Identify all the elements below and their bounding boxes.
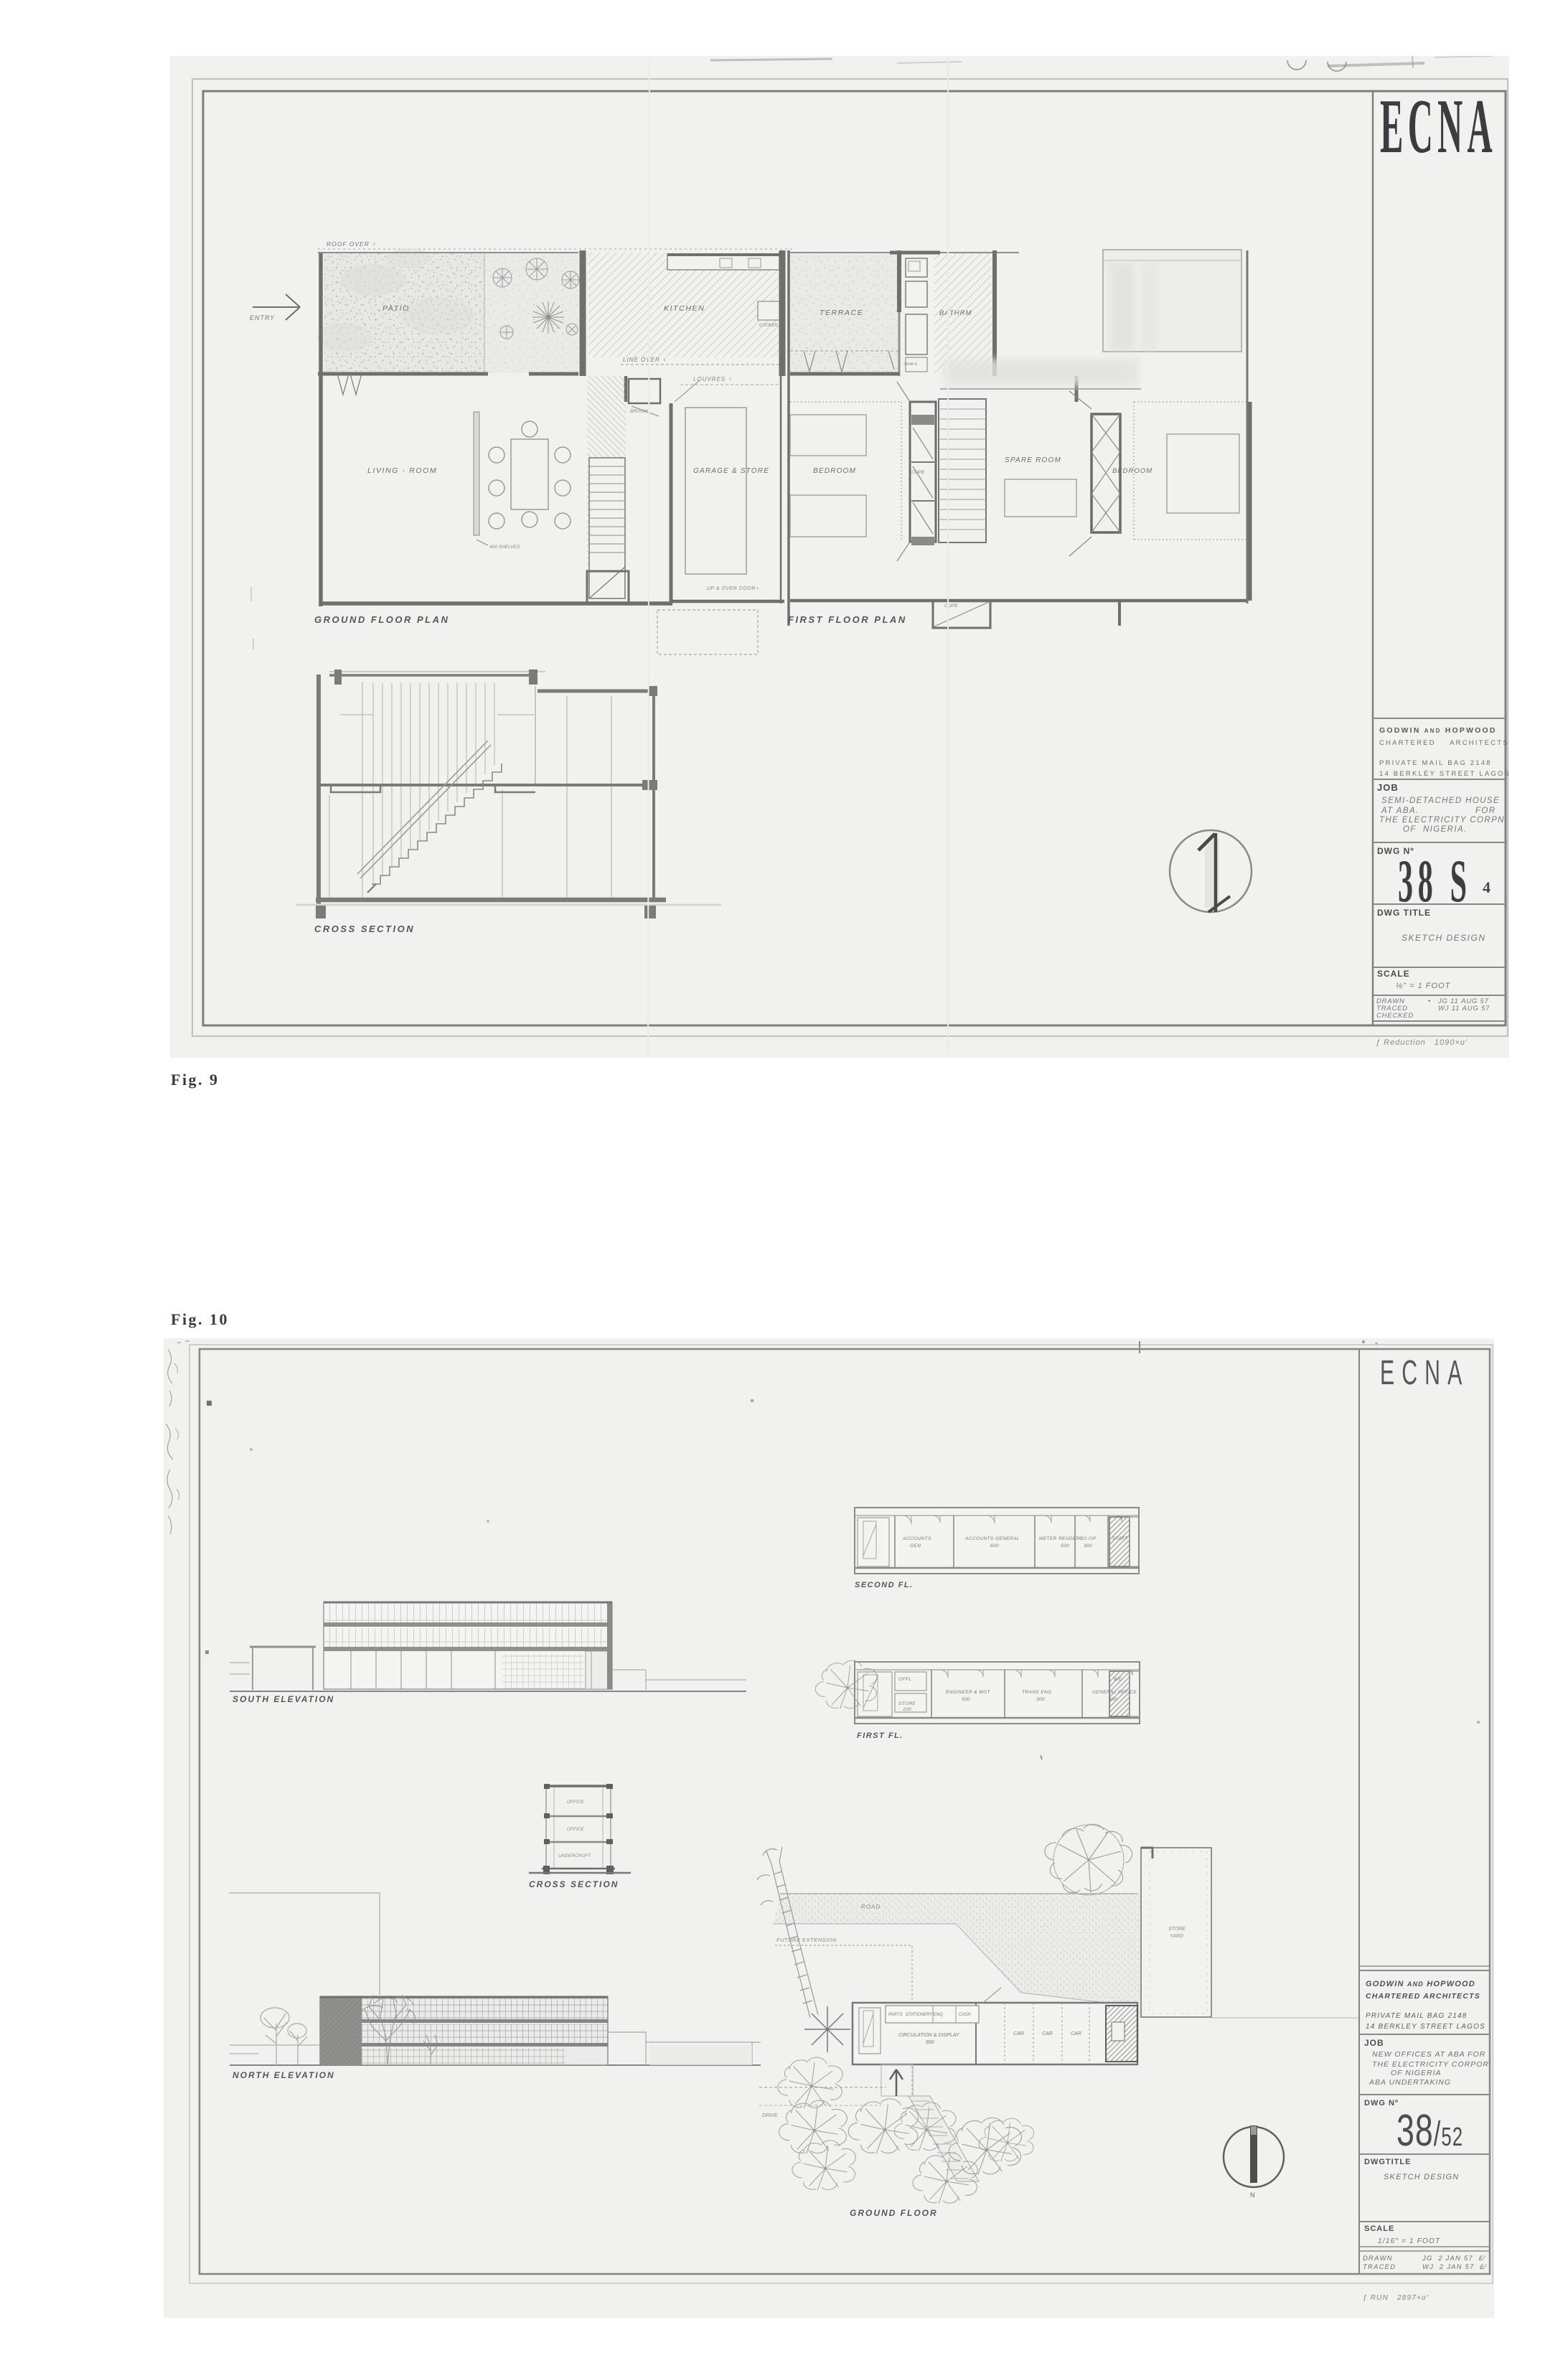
svg-text:COOKER: COOKER [759,324,779,328]
svg-text:ƒ Reduction 1090×ʊ′: ƒ Reduction 1090×ʊ′ [1376,1038,1468,1047]
svg-text:GENERAL OFFICE: GENERAL OFFICE [1092,1690,1137,1695]
svg-text:100: 100 [903,1707,911,1712]
svg-text:⅛" = 1 FOOT: ⅛" = 1 FOOT [1396,982,1451,990]
svg-text:•: • [1428,997,1431,1005]
svg-text:LINE OVER ♀: LINE OVER ♀ [623,357,667,363]
svg-text:WHB &: WHB & [904,362,917,367]
svg-text:UP & OVER DOOR♀: UP & OVER DOOR♀ [707,586,760,591]
svg-text:TRANS ENG: TRANS ENG [1022,1690,1052,1695]
svg-text:TERRACE: TERRACE [820,309,863,317]
svg-text:SCALE: SCALE [1364,2224,1394,2233]
svg-text:CROSS SECTION: CROSS SECTION [529,1879,619,1889]
svg-text:JG 2 JAN 57 £⁄: JG 2 JAN 57 £⁄ [1422,2255,1486,2262]
svg-text:FUTURE EXTENSION: FUTURE EXTENSION [776,1937,837,1943]
svg-text:STORE: STORE [1168,1927,1186,1932]
svg-text:STORE: STORE [898,1701,916,1706]
svg-text:GROUND FLOOR PLAN: GROUND FLOOR PLAN [314,614,449,625]
svg-text:ƒ RUN 2897×ʊ′: ƒ RUN 2897×ʊ′ [1363,2294,1429,2302]
svg-text:ENTRY: ENTRY [250,314,275,321]
svg-text:JOB: JOB [1364,2038,1384,2048]
svg-text:ECNA: ECNA [1380,1354,1469,1392]
svg-text:ROOF OVER ♀: ROOF OVER ♀ [327,240,377,248]
svg-text:LOUVRES ♀: LOUVRES ♀ [693,376,733,382]
svg-text:LIVING - ROOM: LIVING - ROOM [367,466,437,475]
svg-text:OFFICE: OFFICE [567,1827,584,1832]
svg-text:ECNA: ECNA [1380,84,1497,170]
svg-text:600: 600 [990,1543,999,1549]
svg-text:ROAD: ROAD [861,1904,881,1910]
svg-text:GODWIN AND HOPWOOD: GODWIN AND HOPWOOD [1379,726,1497,735]
svg-text:ACCOUNTS: ACCOUNTS [902,1536,931,1541]
svg-text:AT ABA.: AT ABA. [1381,807,1419,815]
svg-text:JOB: JOB [1377,782,1399,793]
svg-text:SEMI-DETACHED HOUSE: SEMI-DETACHED HOUSE [1381,797,1500,805]
svg-text:DWG TITLE: DWG TITLE [1377,908,1431,918]
svg-text:CUPB: CUPB [911,470,925,475]
svg-text:PATIO: PATIO [382,304,410,313]
svg-text:CIRCULATION & DISPLAY: CIRCULATION & DISPLAY [898,2033,960,2038]
svg-text:FIRST FLOOR PLAN: FIRST FLOOR PLAN [788,614,907,625]
svg-text:WC: WC [1114,1677,1122,1682]
svg-text:OF NIGERIA.: OF NIGERIA. [1403,825,1468,834]
svg-text:14 BERKLEY STREET LAGOS: 14 BERKLEY STREET LAGOS [1379,770,1509,778]
svg-text:BATHRM: BATHRM [939,309,972,317]
svg-text:1/16" = 1 FOOT: 1/16" = 1 FOOT [1378,2237,1440,2245]
svg-text:400: 400 [1109,1697,1117,1702]
svg-text:4: 4 [1483,878,1492,896]
svg-text:DWG Nº: DWG Nº [1364,2099,1399,2107]
svg-text:YARD: YARD [1170,1934,1183,1939]
svg-text:PRIVATE MAIL BAG 2148: PRIVATE MAIL BAG 2148 [1379,759,1492,767]
svg-text:WJ 11 AUG 57: WJ 11 AUG 57 [1438,1005,1490,1012]
svg-text:CROSS SECTION: CROSS SECTION [314,924,415,934]
svg-text:CAR: CAR [1013,2031,1024,2036]
svg-text:OFFICE: OFFICE [567,1800,584,1805]
svg-text:WJ 2 JAN 57 £⁄: WJ 2 JAN 57 £⁄ [1422,2263,1488,2271]
svg-text:GARAGE & STORE: GARAGE & STORE [693,467,769,475]
svg-text:CAR: CAR [1071,2031,1081,2036]
svg-text:14 BERKLEY STREET LAGOS: 14 BERKLEY STREET LAGOS [1366,2023,1485,2031]
svg-text:ENGINEER & MGT: ENGINEER & MGT [946,1690,991,1695]
svg-text:DWGTITLE: DWGTITLE [1364,2158,1411,2166]
svg-text:300: 300 [1084,1543,1092,1549]
svg-text:STAFF: STAFF [1112,1536,1129,1541]
svg-text:BEDROOM: BEDROOM [813,467,856,475]
svg-text:N: N [1250,2191,1255,2199]
svg-text:OF NIGERIA: OF NIGERIA [1391,2069,1441,2077]
svg-text:FIRST FL.: FIRST FL. [857,1731,903,1740]
svg-text:SOUTH ELEVATION: SOUTH ELEVATION [233,1694,334,1704]
svg-text:OFFL: OFFL [898,1677,911,1682]
svg-text:DRIVE: DRIVE [762,2113,778,2118]
svg-text:FOR: FOR [1475,807,1496,815]
svg-text:500: 500 [962,1697,970,1702]
svg-text:38 S: 38 S [1398,847,1472,915]
svg-text:ABA UNDERTAKING: ABA UNDERTAKING [1369,2078,1451,2087]
svg-text:CHECKED: CHECKED [1376,1012,1414,1020]
svg-text:CASH: CASH [959,2013,971,2017]
svg-text:CHARTERED ARCHITECTS: CHARTERED ARCHITECTS [1379,739,1509,747]
svg-text:THE ELECTRICITY CORPN: THE ELECTRICITY CORPN [1379,816,1505,824]
svg-text:GODWIN AND HOPWOOD: GODWIN AND HOPWOOD [1366,1980,1475,1988]
svg-text:METER READERS: METER READERS [1039,1536,1083,1541]
svg-text:THE ELECTRICITY CORPOR: THE ELECTRICITY CORPOR [1372,2060,1489,2069]
svg-text:PARTS: PARTS [888,2013,902,2017]
svg-text:SKETCH DESIGN: SKETCH DESIGN [1402,933,1486,943]
svg-text:CO-OP: CO-OP [1079,1536,1097,1541]
svg-text:STATIONERY ENQ: STATIONERY ENQ [906,2013,943,2017]
svg-text:CUPB: CUPB [944,603,958,608]
svg-text:GEN: GEN [910,1543,921,1549]
svg-text:NORTH ELEVATION: NORTH ELEVATION [233,2070,335,2080]
svg-text:UNDERCROFT: UNDERCROFT [558,1853,592,1859]
svg-text:400 SHELVES: 400 SHELVES [489,545,520,550]
svg-text:500: 500 [1061,1543,1069,1549]
svg-text:SPARE ROOM: SPARE ROOM [1005,456,1061,464]
svg-text:800: 800 [926,2040,934,2045]
svg-text:KITCHEN: KITCHEN [664,304,705,313]
svg-text:ACCOUNTS GENERAL: ACCOUNTS GENERAL [964,1536,1020,1541]
svg-text:SECOND FL.: SECOND FL. [855,1581,914,1589]
svg-text:TRACED: TRACED [1363,2263,1396,2271]
svg-text:300: 300 [1036,1697,1045,1702]
svg-text:PRIVATE MAIL BAG 2148: PRIVATE MAIL BAG 2148 [1366,2012,1468,2020]
svg-text:CAR: CAR [1042,2031,1053,2036]
svg-text:NEW OFFICES AT ABA FOR: NEW OFFICES AT ABA FOR [1372,2050,1485,2059]
svg-text:SKETCH DESIGN: SKETCH DESIGN [1384,2173,1459,2181]
svg-text:BEDROOM: BEDROOM [1112,467,1152,475]
svg-text:38/52: 38/52 [1396,2105,1463,2156]
svg-text:SCALE: SCALE [1377,969,1410,979]
svg-text:GROUND FLOOR: GROUND FLOOR [850,2208,938,2218]
svg-text:DRAWN: DRAWN [1363,2255,1393,2262]
svg-text:CHARTERED ARCHITECTS: CHARTERED ARCHITECTS [1366,1992,1480,2001]
